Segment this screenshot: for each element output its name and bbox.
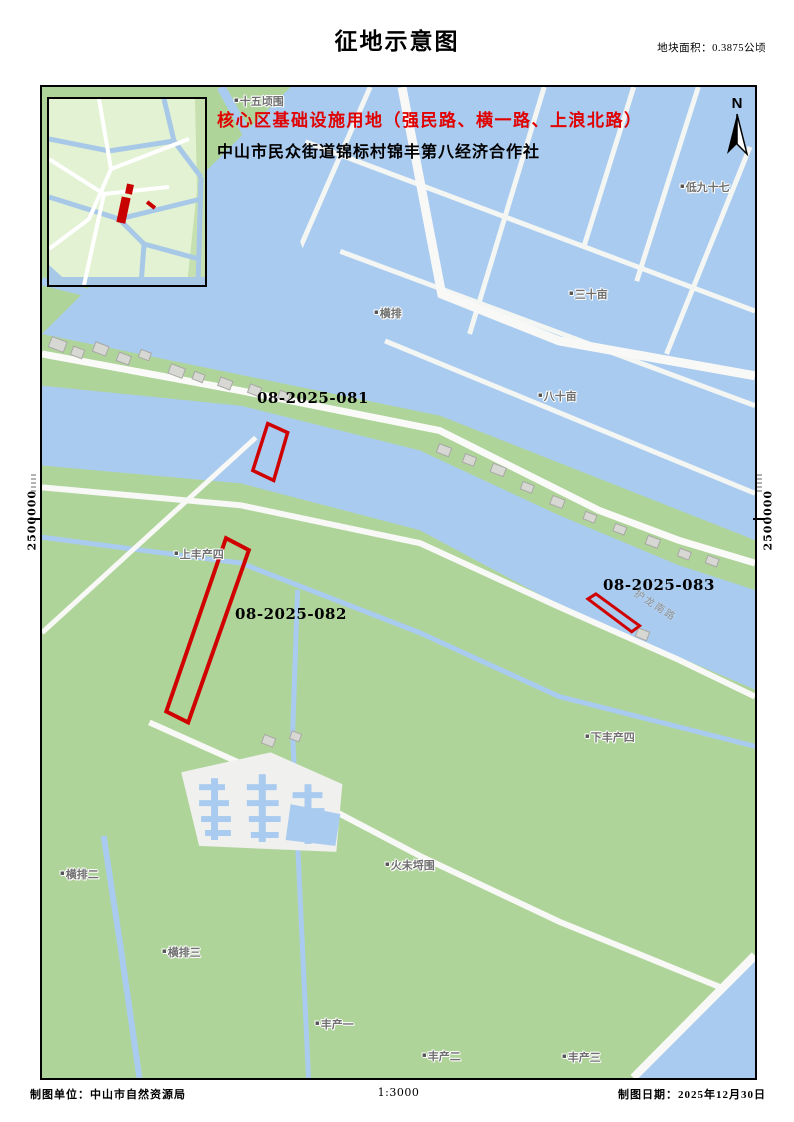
place-label-fengchansan: ▪丰产三 (562, 1049, 601, 1065)
map-frame: 核心区基础设施用地（强民路、横一路、上浪北路） 中山市民众街道锦标村锦丰第八经济… (40, 85, 757, 1080)
place-label-fengchaner: ▪丰产二 (422, 1048, 461, 1064)
place-label-sanshimu: ▪三十亩 (569, 286, 608, 302)
north-arrow: N (722, 95, 752, 167)
place-label-text: 三十亩 (575, 288, 608, 301)
place-marker-icon: ▪ (385, 860, 390, 868)
parcel-083-label: 08-2025-083 (603, 576, 715, 594)
place-label-shangfengchansi: ▪上丰产四 (174, 546, 224, 562)
place-marker-icon: ▪ (374, 308, 379, 316)
place-label-hengpaier: ▪横排二 (60, 866, 99, 882)
place-label-hengpai: ▪横排 (374, 305, 402, 321)
parcel-081-label: 08-2025-081 (257, 389, 369, 407)
cooperative-name-overlay: 中山市民众街道锦标村锦丰第八经济合作社 (217, 138, 540, 162)
place-label-text: 八十亩 (544, 390, 577, 403)
place-label-text: 丰产二 (428, 1050, 461, 1063)
place-label-dijiushiqi: ▪低九十七 (680, 179, 730, 195)
place-marker-icon: ▪ (174, 549, 179, 557)
place-label-shiwuqingwei: ▪十五顷围 (234, 93, 284, 109)
place-label-text: 下丰产四 (591, 731, 635, 744)
place-label-text: 横排二 (66, 868, 99, 881)
coordinate-label-left: 2500000 (26, 503, 39, 551)
place-label-text: 上丰产四 (180, 548, 224, 561)
place-marker-icon: ▪ (569, 289, 574, 297)
land-acquisition-map-page: 征地示意图 地块面积：0.3875公顷 (0, 0, 794, 1122)
place-marker-icon: ▪ (562, 1052, 567, 1060)
place-marker-icon: ▪ (60, 869, 65, 877)
place-label-text: 丰产一 (321, 1018, 354, 1031)
project-name-overlay: 核心区基础设施用地（强民路、横一路、上浪北路） (217, 106, 643, 131)
place-label-bashimu: ▪八十亩 (538, 388, 577, 404)
parcel-082-label: 08-2025-082 (235, 605, 347, 623)
place-label-text: 低九十七 (686, 181, 730, 194)
inset-overview-map (47, 97, 207, 287)
place-label-hengpaisan: ▪横排三 (162, 944, 201, 960)
place-label-xiafengchansi: ▪下丰产四 (585, 729, 635, 745)
place-label-fengchanyi: ▪丰产一 (315, 1016, 354, 1032)
place-label-text: 火未埒围 (391, 859, 435, 872)
inset-art (49, 99, 205, 285)
place-label-text: 横排 (380, 307, 402, 320)
place-marker-icon: ▪ (315, 1019, 320, 1027)
north-label: N (722, 95, 752, 112)
map-date-note: 制图日期：2025年12月30日 (618, 1086, 766, 1102)
place-marker-icon: ▪ (585, 732, 590, 740)
place-marker-icon: ▪ (234, 96, 239, 104)
north-arrow-icon (722, 112, 752, 162)
minor-tick-marks-left (31, 474, 36, 494)
place-marker-icon: ▪ (162, 947, 167, 955)
place-label-huoweiliewei: ▪火未埒围 (385, 857, 435, 873)
parcel-area-note: 地块面积：0.3875公顷 (657, 40, 766, 55)
place-label-text: 横排三 (168, 946, 201, 959)
place-marker-icon: ▪ (680, 182, 685, 190)
minor-tick-marks-right (757, 474, 762, 494)
place-marker-icon: ▪ (538, 391, 543, 399)
coordinate-label-right: 2500000 (762, 503, 775, 551)
place-label-text: 十五顷围 (240, 95, 284, 108)
place-marker-icon: ▪ (422, 1051, 427, 1059)
place-label-text: 丰产三 (568, 1051, 601, 1064)
coordinate-tick-right (753, 518, 765, 520)
coordinate-tick-left (30, 518, 42, 520)
